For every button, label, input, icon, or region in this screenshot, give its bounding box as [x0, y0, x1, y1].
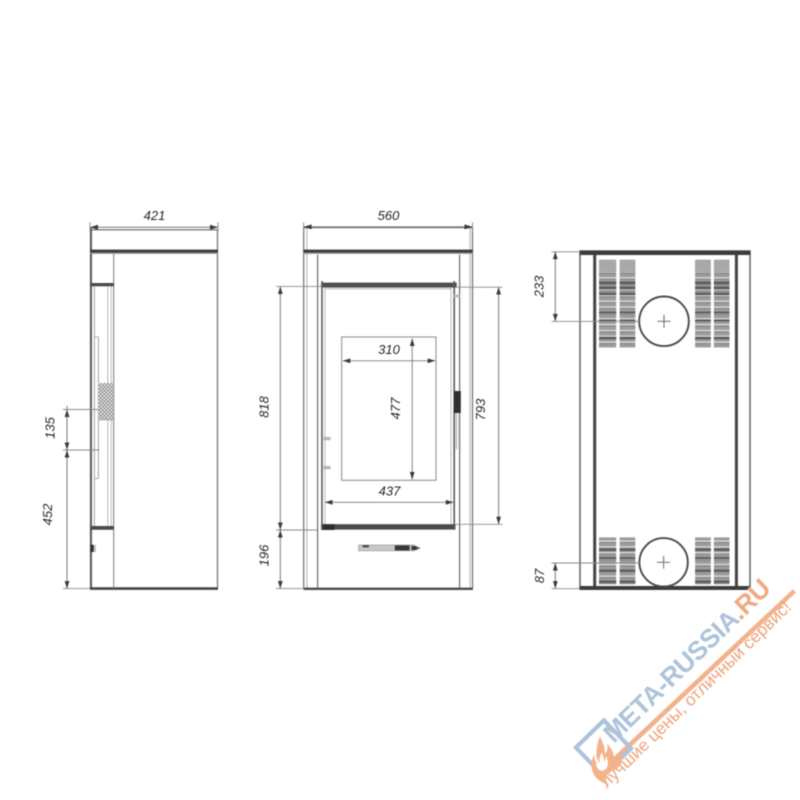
svg-text:135: 135: [43, 416, 58, 438]
svg-text:452: 452: [40, 503, 55, 525]
svg-text:233: 233: [532, 275, 547, 298]
svg-text:87: 87: [532, 568, 547, 583]
svg-text:560: 560: [378, 208, 400, 223]
svg-text:477: 477: [388, 397, 403, 419]
svg-text:310: 310: [378, 342, 400, 357]
svg-text:196: 196: [256, 544, 271, 566]
svg-text:421: 421: [144, 208, 166, 223]
svg-text:437: 437: [379, 484, 401, 499]
svg-text:793: 793: [473, 398, 488, 420]
svg-text:818: 818: [256, 395, 271, 417]
